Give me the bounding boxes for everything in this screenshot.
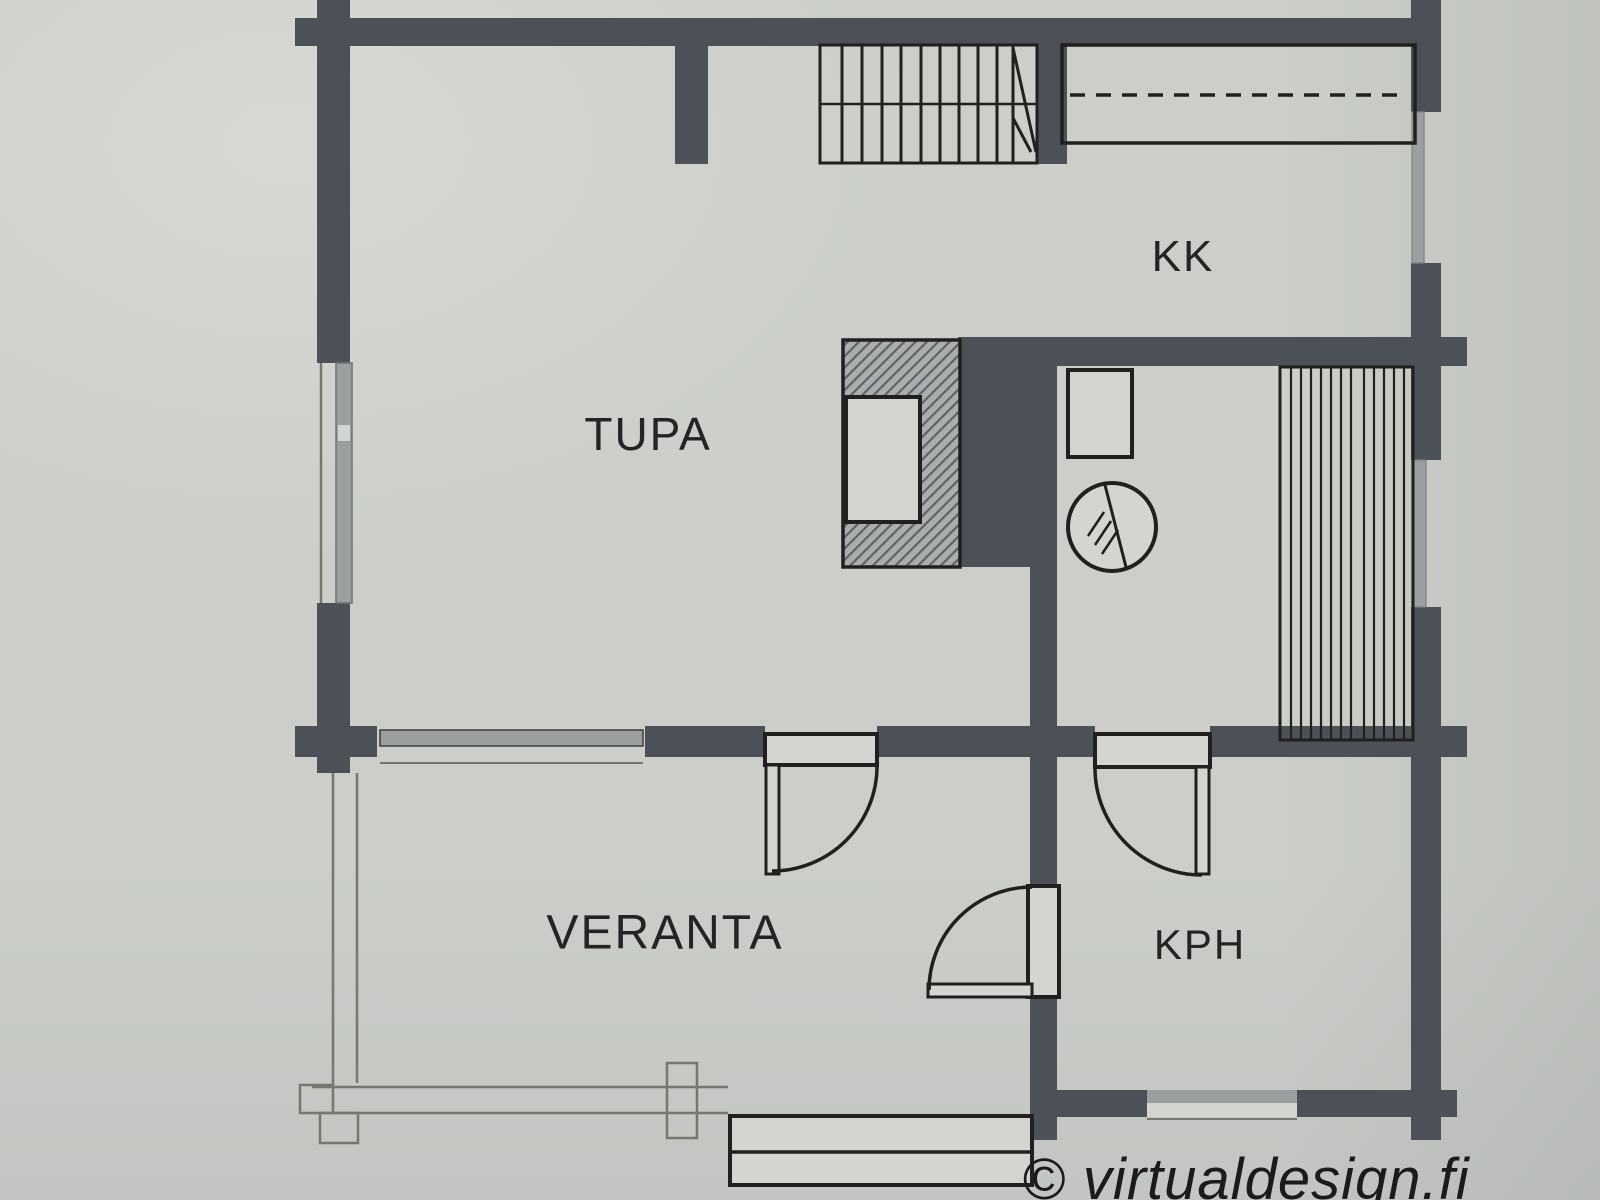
door-tupa-veranta <box>765 734 877 874</box>
door-kph <box>1095 734 1210 875</box>
stove-symbol <box>1068 370 1132 457</box>
stair-direction-line <box>1013 48 1036 152</box>
fireplace <box>843 340 960 567</box>
entrance-steps <box>730 1116 1032 1185</box>
window-tupa-south <box>380 730 643 763</box>
veranda-corner-post <box>300 1085 333 1113</box>
room-label-tupa: TUPA <box>584 407 711 461</box>
door-threshold <box>765 734 877 765</box>
door-leaf <box>928 984 1032 997</box>
wall-left-upper <box>317 0 350 363</box>
veranda-corner-post-foot <box>320 1113 358 1143</box>
wall-divider-lower <box>1030 997 1057 1140</box>
door-swing-arc <box>772 766 877 871</box>
staircase <box>820 45 1037 163</box>
wall-top <box>295 18 1437 46</box>
door-threshold <box>1028 886 1059 997</box>
exterior-walls <box>295 0 1457 1140</box>
wall-bottom-kph-b <box>1297 1090 1457 1117</box>
door-swing-arc <box>1095 768 1202 875</box>
room-label-veranta: VERANTA <box>546 906 783 961</box>
kk-fixtures <box>1068 370 1156 571</box>
window-kph-south <box>1147 1090 1297 1119</box>
room-label-kk: KK <box>1152 232 1215 282</box>
fireplace-opening <box>846 397 920 522</box>
door-leaf <box>766 765 779 874</box>
floor-plan-drawing <box>0 0 1600 1200</box>
windows <box>321 112 1426 1119</box>
room-label-kph: KPH <box>1154 921 1246 969</box>
wall-mid-c <box>877 726 1095 757</box>
door-swing-arc <box>929 887 1032 990</box>
door-leaf <box>1196 767 1209 874</box>
window-left <box>321 363 352 603</box>
door-threshold <box>1095 734 1210 767</box>
wall-mid-a <box>295 726 377 757</box>
floor-plan: TUPA KK VERANTA KPH © virtualdesign.fi <box>0 0 1600 1200</box>
chimney-mass <box>958 337 1057 567</box>
watermark: © virtualdesign.fi <box>1022 1146 1470 1200</box>
boiler-symbol <box>1068 483 1156 571</box>
veranda-mid-post <box>667 1063 697 1138</box>
wall-mid-b <box>645 726 765 757</box>
wall-stair-left <box>675 18 708 164</box>
closet <box>1062 45 1415 143</box>
sauna-benches <box>1280 367 1413 740</box>
door-veranta-kph <box>928 886 1059 997</box>
wall-right-lower <box>1411 607 1441 1140</box>
